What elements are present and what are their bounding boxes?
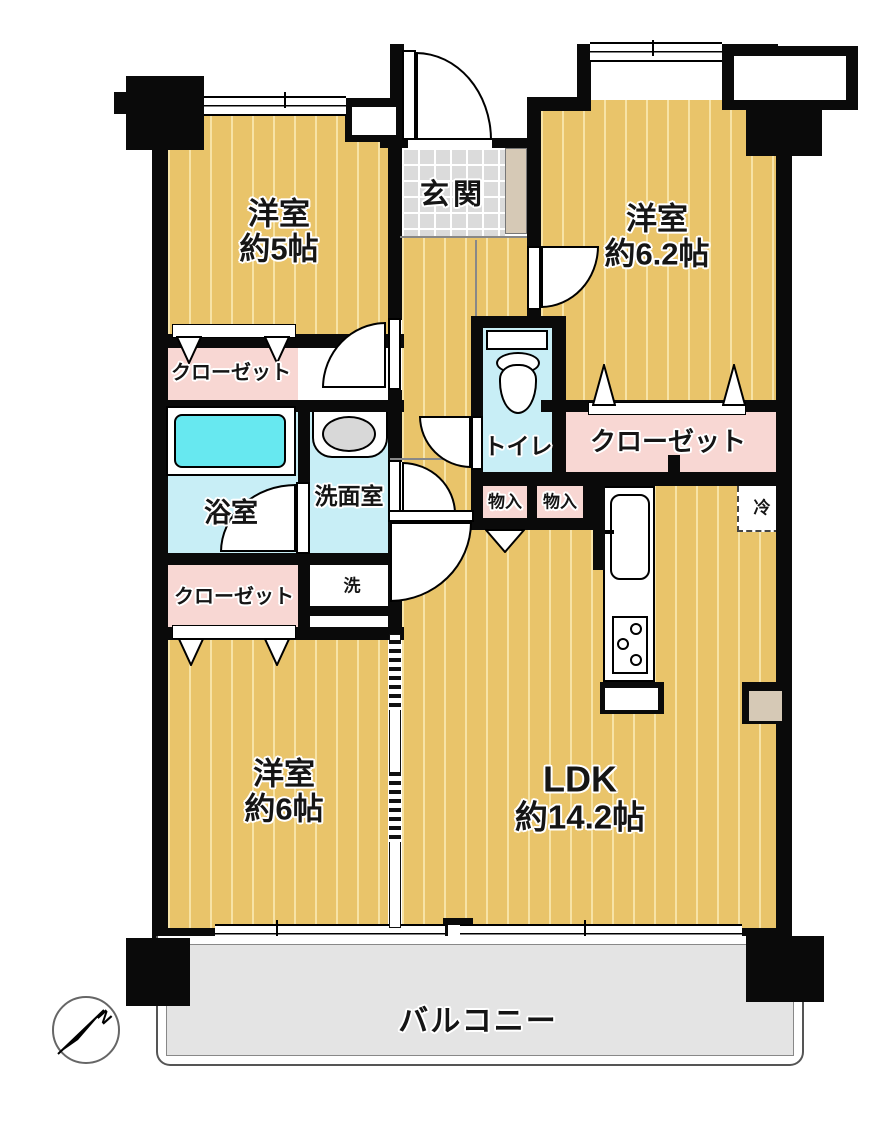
window-tick [284,92,286,108]
wall-segment [776,148,792,943]
wall-segment [152,553,404,565]
wall-segment [471,472,593,486]
washbasin-icon [322,416,376,452]
column [746,106,822,156]
sliding-door-panel [389,772,401,842]
folding-door-icon [264,336,290,364]
kitchen-stove [612,616,648,674]
bedroom-sw-label: 洋室 約6帖 [244,757,323,826]
ldk-label: LDK 約14.2帖 [515,759,645,836]
wall-stub-inner [352,107,396,135]
column [126,76,204,150]
entrance-label: 玄関 [420,179,486,211]
wall-segment [668,455,680,472]
hallway-floor [402,238,527,318]
kitchen-sink [610,494,650,580]
bedroom-ne-label: 洋室 約6.2帖 [604,202,709,271]
toilet-door-leaf [471,416,483,470]
burner-icon [630,654,642,666]
balcony-floor [166,944,794,1056]
closet-nw-label: クローゼット [171,362,291,384]
balcony-label: バルコニー [398,1005,557,1039]
washroom-door-leaf [388,460,401,516]
bathroom-door-leaf [296,482,310,554]
entrance-step-line [400,236,527,238]
burner-icon [630,623,642,635]
window [590,42,722,62]
ldk-door-leaf [388,510,474,522]
floorplan: N 洋室 約5帖 玄関 洋室 約6.2帖 クローゼット 浴室 洗面室 トイレ ク… [0,0,890,1125]
toilet-label: トイレ [484,434,553,460]
bathroom-label: 浴室 [204,498,258,528]
wall-segment [298,565,310,627]
entrance-door-leaf [402,50,416,140]
room-name: LDK [515,759,645,799]
column [114,92,128,114]
wall-segment [552,316,566,476]
closet-e-label: クローゼット [590,427,746,456]
storage-1-label: 物入 [488,492,522,511]
wall-stub-inner [605,688,658,710]
burner-icon [617,638,629,650]
wall-segment [527,486,537,518]
wall-segment [388,148,402,320]
bathtub [174,414,286,468]
room-area: 約6帖 [244,792,323,827]
refrigerator-label: 冷 [754,498,771,517]
bedroom-nw-label: 洋室 約5帖 [239,197,318,266]
room-name: 洋室 [604,202,709,237]
window [200,96,346,116]
washroom-label: 洗面室 [315,484,384,510]
folding-door-icon [592,364,616,406]
bedroom-nw-door-leaf [388,318,401,390]
room-area: 約5帖 [239,232,318,267]
folding-door-icon [176,336,202,364]
room-area: 約14.2帖 [515,800,645,837]
folding-door-icon [722,364,746,406]
room-name: 洋室 [239,197,318,232]
column [126,938,190,1006]
shoe-cabinet [505,148,527,234]
compass: N [50,994,122,1066]
wall-segment [527,108,541,248]
closet-sw-door-bar [172,625,296,639]
folding-door-icon [264,638,290,666]
wall-segment [492,138,532,148]
wall-segment [152,98,168,943]
storage-2-label: 物入 [543,492,577,511]
room-area: 約6.2帖 [604,237,709,272]
counter-piece [749,691,782,721]
folding-door-icon [485,529,525,553]
wall-segment [388,390,402,462]
wall-segment [593,486,605,570]
toilet-tank-shelf [486,330,548,350]
window-tick [652,40,654,56]
room-name: 洋室 [244,757,323,792]
entrance-door-arc [416,52,492,140]
balcony-frame-ne-inner [734,56,846,100]
folding-door-icon [178,638,204,666]
sliding-door-panel [389,640,401,710]
laundry-label: 洗 [344,576,361,595]
bedroom-ne-door-leaf [527,246,541,310]
wall-segment [310,606,388,616]
hall-divider-line [475,240,477,316]
closet-sw-label: クローゼット [174,586,294,608]
column [746,936,824,1002]
